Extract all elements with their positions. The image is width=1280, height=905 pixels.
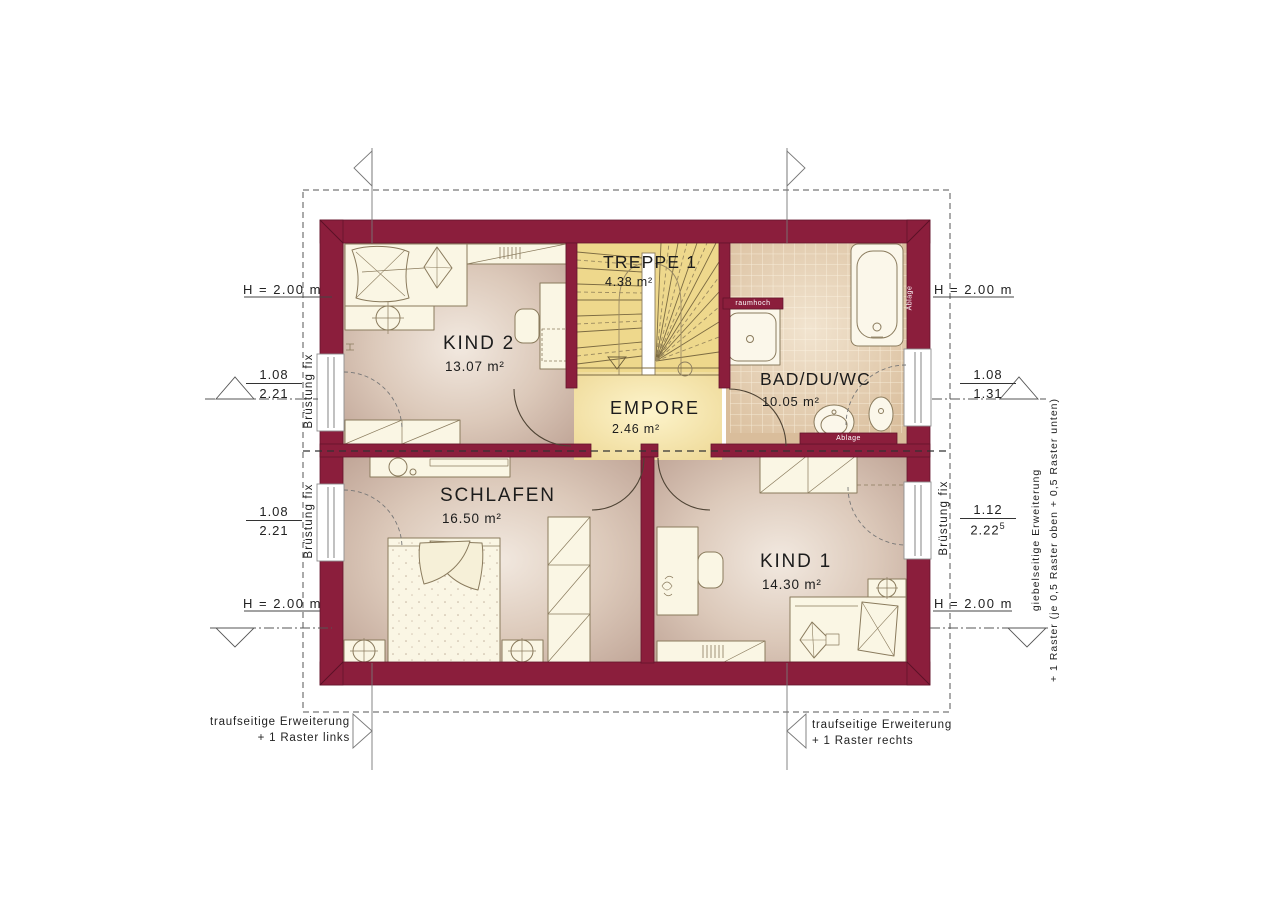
room-name: TREPPE 1 — [603, 252, 697, 273]
room-area: 16.50 m² — [440, 511, 556, 526]
room-label-kind2: KIND 2 13.07 m² — [443, 333, 515, 374]
bruestung-label-left-bottom: Brüstung fix — [303, 483, 315, 558]
bruestung-label-right: Brüstung fix — [938, 480, 950, 555]
room-label-treppe: TREPPE 1 4.38 m² — [603, 252, 697, 289]
room-area: 2.46 m² — [610, 422, 700, 436]
note-right-vertical: giebelseitige Erweiterung + 1 Raster (je… — [1028, 398, 1064, 682]
dim-numerator: 1.08 — [960, 367, 1016, 384]
dim-denominator: 1.31 — [960, 384, 1016, 401]
dim-denominator: 2.21 — [246, 521, 302, 538]
room-area: 10.05 m² — [760, 394, 871, 409]
height-dim-bottom-right: H = 2.00 m — [934, 596, 1013, 611]
note-line: + 1 Raster (je 0,5 Raster oben + 0,5 Ras… — [1046, 398, 1064, 682]
bath-ablage-label-right: Ablage — [907, 286, 914, 311]
bruestung-label-left-top: Brüstung fix — [303, 353, 315, 428]
height-dim-bottom-left: H = 2.00 m — [243, 596, 322, 611]
note-line: traufseitige Erweiterung — [812, 717, 982, 733]
note-bottom-right: traufseitige Erweiterung + 1 Raster rech… — [812, 717, 982, 749]
room-name: KIND 2 — [443, 333, 515, 355]
window-dim-left-top: 1.08 2.21 — [246, 367, 302, 401]
dim-superscript: 5 — [1000, 521, 1006, 531]
room-label-kind1: KIND 1 14.30 m² — [760, 551, 832, 592]
room-name: SCHLAFEN — [440, 485, 556, 507]
room-label-empore: EMPORE 2.46 m² — [610, 398, 700, 436]
dim-numerator: 1.12 — [960, 502, 1016, 519]
room-area: 13.07 m² — [443, 359, 515, 374]
room-name: BAD/DU/WC — [760, 369, 871, 390]
room-label-schlafen: SCHLAFEN 16.50 m² — [440, 485, 556, 526]
dim-denominator: 2.21 — [246, 384, 302, 401]
height-dim-top-left: H = 2.00 m — [243, 282, 322, 297]
bath-ablage-label-bottom: Ablage — [800, 435, 897, 442]
floorplan-svg — [0, 0, 1280, 905]
dim-denominator: 2.225 — [960, 519, 1016, 537]
note-line: giebelseitige Erweiterung — [1028, 398, 1046, 682]
dim-numerator: 1.08 — [246, 367, 302, 384]
note-line: + 1 Raster links — [200, 730, 350, 746]
window-dim-left-bottom: 1.08 2.21 — [246, 504, 302, 538]
room-area: 14.30 m² — [760, 577, 832, 592]
bath-raumhoch-label: raumhoch — [723, 300, 783, 307]
floor-plan-page: KIND 2 13.07 m² TREPPE 1 4.38 m² BAD/DU/… — [0, 0, 1280, 905]
room-label-bad: BAD/DU/WC 10.05 m² — [760, 369, 871, 409]
window-dim-right-bottom: 1.12 2.225 — [960, 502, 1016, 537]
note-line: + 1 Raster rechts — [812, 733, 982, 749]
room-area: 4.38 m² — [603, 275, 697, 289]
room-name: EMPORE — [610, 398, 700, 419]
note-line: traufseitige Erweiterung — [200, 714, 350, 730]
height-dim-top-right: H = 2.00 m — [934, 282, 1013, 297]
dim-numerator: 1.08 — [246, 504, 302, 521]
room-name: KIND 1 — [760, 551, 832, 573]
note-bottom-left: traufseitige Erweiterung + 1 Raster link… — [200, 714, 350, 746]
window-dim-right-top: 1.08 1.31 — [960, 367, 1016, 401]
